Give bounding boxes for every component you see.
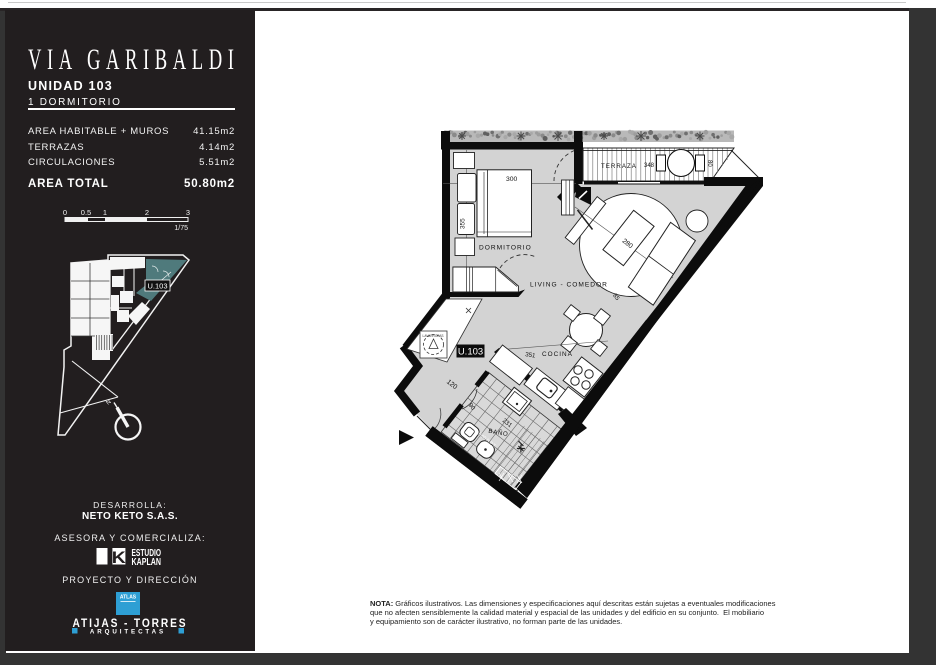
svg-text:0.5: 0.5 bbox=[81, 208, 91, 217]
svg-text:TERRAZA: TERRAZA bbox=[601, 163, 637, 170]
svg-text:COCINA: COCINA bbox=[542, 351, 573, 358]
svg-text:1/75: 1/75 bbox=[174, 225, 188, 232]
svg-text:300: 300 bbox=[506, 176, 518, 183]
svg-text:DORMITORIO: DORMITORIO bbox=[479, 245, 532, 252]
svg-text:348: 348 bbox=[644, 163, 655, 169]
svg-text:LAVARROPAS: LAVARROPAS bbox=[423, 334, 444, 338]
svg-text:K: K bbox=[112, 548, 127, 567]
svg-text:355: 355 bbox=[460, 218, 467, 229]
svg-text:ATLAS: ATLAS bbox=[120, 595, 137, 601]
svg-text:2: 2 bbox=[145, 208, 149, 217]
svg-text:3: 3 bbox=[186, 208, 190, 217]
svg-text:U.103: U.103 bbox=[147, 282, 167, 291]
svg-text:351: 351 bbox=[525, 351, 537, 359]
svg-text:KAPLAN: KAPLAN bbox=[132, 557, 162, 568]
svg-text:1: 1 bbox=[103, 208, 107, 217]
svg-text:N: N bbox=[105, 399, 112, 406]
svg-text:LIVING - COMEDOR: LIVING - COMEDOR bbox=[530, 282, 608, 289]
svg-text:80: 80 bbox=[706, 160, 712, 167]
svg-text:U.103: U.103 bbox=[458, 347, 483, 358]
svg-text:ARQUITECTAS: ARQUITECTAS bbox=[90, 629, 166, 636]
svg-text:0: 0 bbox=[63, 208, 67, 217]
